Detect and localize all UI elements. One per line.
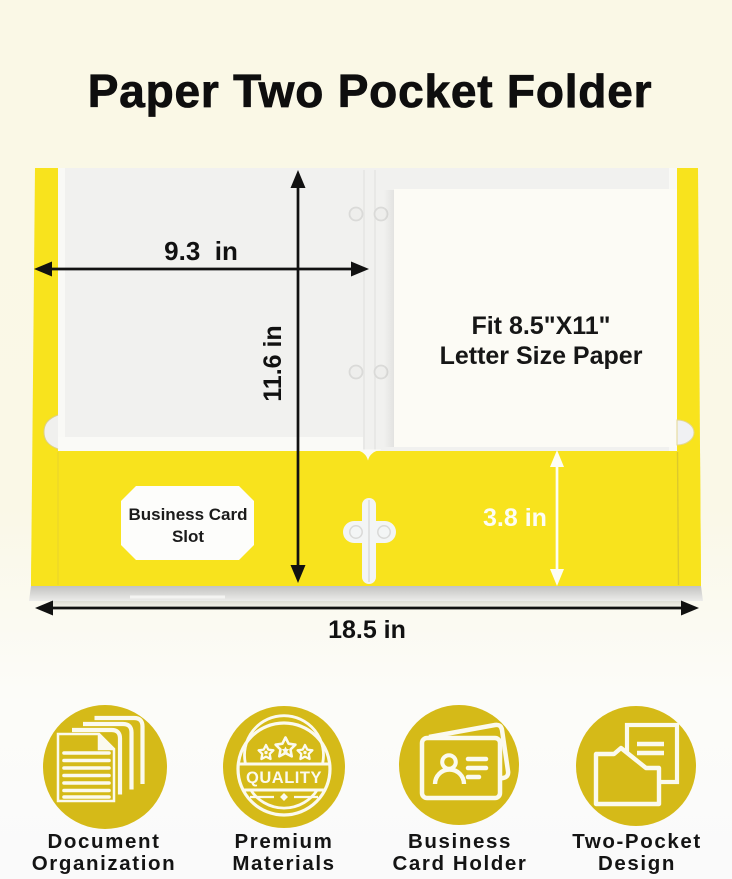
svg-text:Slot: Slot: [172, 527, 204, 546]
svg-text:18.5 in: 18.5 in: [328, 616, 406, 644]
svg-text:Business Card: Business Card: [128, 505, 247, 524]
svg-text:3.8 in: 3.8 in: [483, 504, 547, 532]
svg-text:11.6 in: 11.6 in: [259, 325, 287, 401]
svg-text:Letter Size Paper: Letter Size Paper: [440, 342, 643, 370]
svg-text:9.3 in: 9.3 in: [164, 236, 238, 266]
svg-text:QUALITY: QUALITY: [246, 769, 322, 787]
svg-text:Fit 8.5"X11": Fit 8.5"X11": [471, 312, 610, 340]
